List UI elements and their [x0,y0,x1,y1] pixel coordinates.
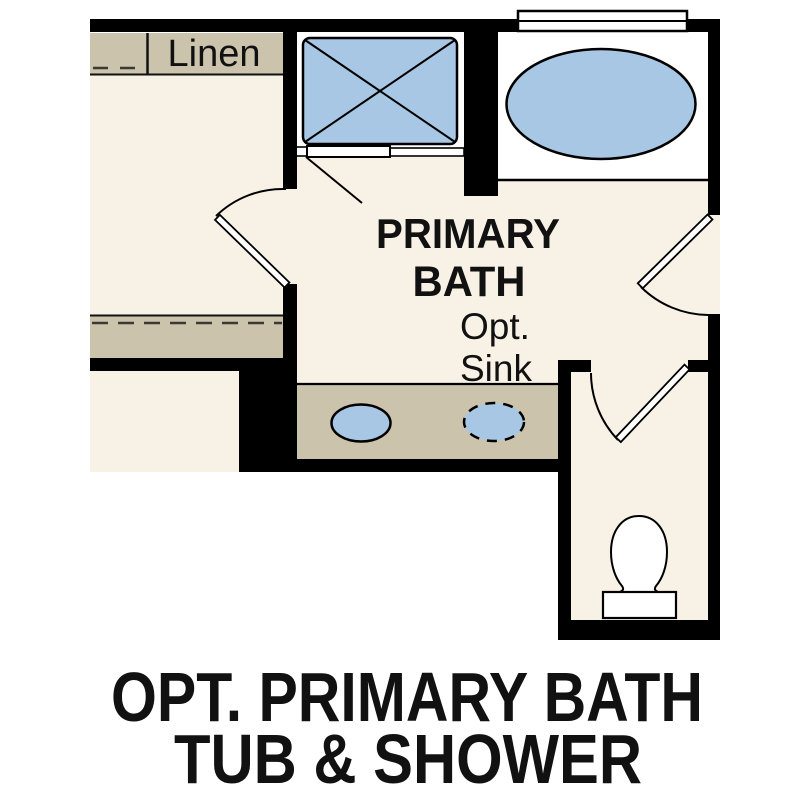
svg-text:Sink: Sink [460,348,532,389]
svg-text:PRIMARY: PRIMARY [376,210,560,257]
svg-text:Linen: Linen [168,33,261,75]
svg-text:Opt.: Opt. [460,306,530,347]
svg-text:TUB & SHOWER: TUB & SHOWER [174,720,642,798]
svg-text:BATH: BATH [413,258,526,306]
